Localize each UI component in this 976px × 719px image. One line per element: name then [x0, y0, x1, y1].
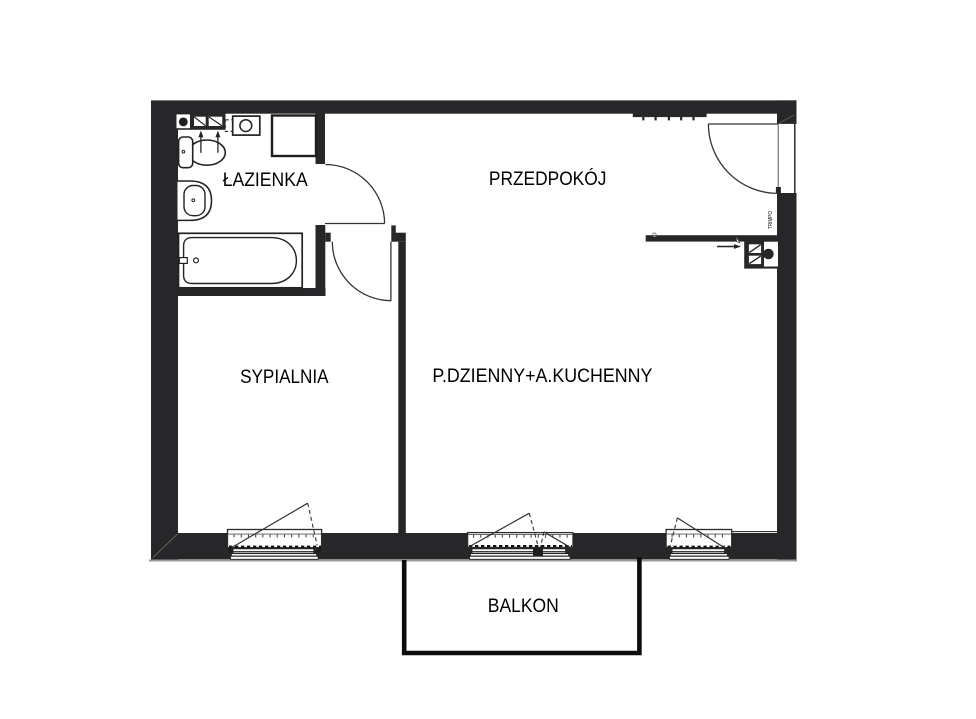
svg-text:PRZEDPOKÓJ: PRZEDPOKÓJ [489, 167, 607, 190]
svg-text:ŁAZIENKA: ŁAZIENKA [223, 169, 308, 191]
svg-text:SYPIALNIA: SYPIALNIA [240, 366, 329, 388]
svg-text:BALKON: BALKON [488, 595, 559, 617]
svg-text:P.DZIENNY+A.KUCHENNY: P.DZIENNY+A.KUCHENNY [432, 365, 652, 387]
svg-text:TRIMPO: TRIMPO [768, 210, 774, 229]
